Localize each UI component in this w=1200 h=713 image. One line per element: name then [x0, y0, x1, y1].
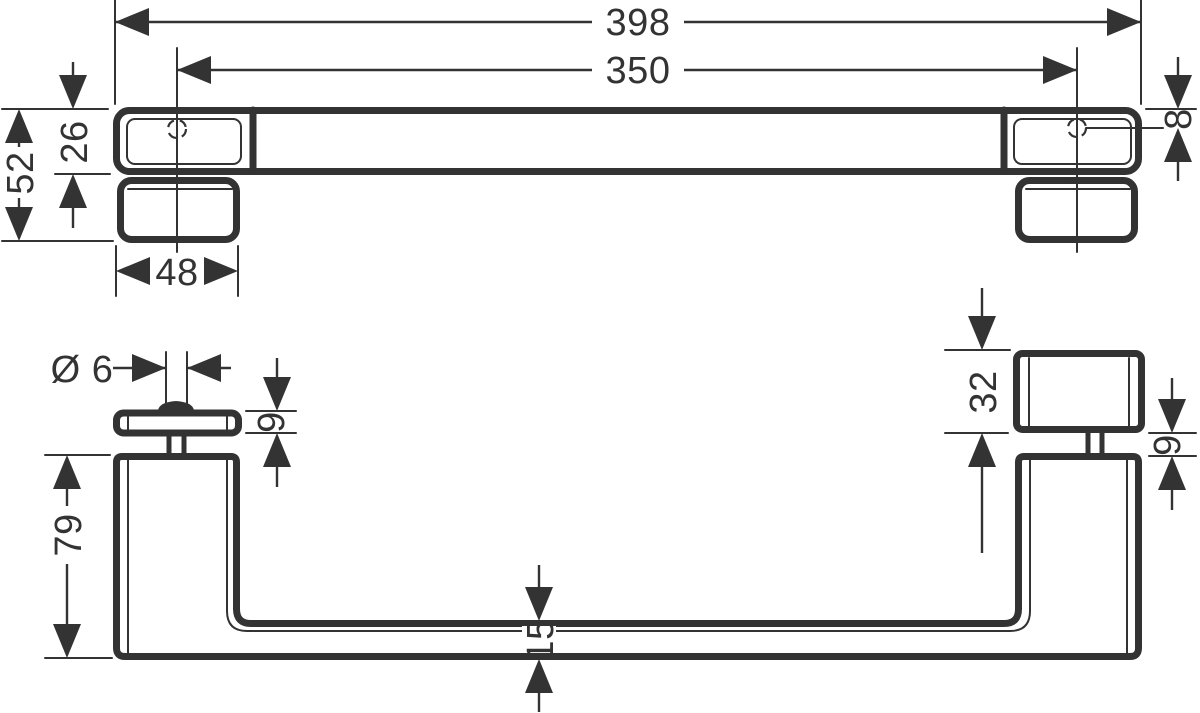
bar-outline: [117, 111, 1139, 172]
dim-hole-offset-label: 8: [1158, 108, 1200, 130]
dim-overall-length-label: 398: [606, 2, 671, 44]
dim-end-height-label: 52: [0, 151, 42, 194]
arrowhead: [59, 75, 87, 109]
technical-drawing: 398 350 52 26 48 8: [0, 0, 1200, 713]
drawing-canvas: 398 350 52 26 48 8: [0, 0, 1200, 713]
arrowhead: [59, 174, 87, 208]
arrowhead: [263, 433, 291, 467]
arrowhead: [132, 354, 166, 382]
dim-plate-width-label: 48: [155, 252, 198, 294]
arrowhead: [1164, 75, 1192, 109]
dim-gap-label: 9: [1147, 434, 1189, 456]
arrowhead: [1107, 8, 1141, 36]
arrowhead: [204, 257, 238, 285]
arrowhead: [115, 8, 149, 36]
dim-bar-height-label: 26: [54, 120, 96, 163]
right-block-inner-contour: [1014, 119, 1131, 164]
dim-cap-thickness-label: 9: [251, 411, 293, 433]
dim-pin-diameter-label: Ø 6: [51, 349, 114, 391]
arrowhead: [525, 587, 553, 621]
arrowhead: [187, 354, 221, 382]
dim-hole-spacing-label: 350: [606, 50, 671, 92]
bar-inner-contour: [227, 460, 1030, 631]
arrowhead: [1158, 456, 1186, 490]
top-view-dimensions: 398 350 52 26 48 8: [0, 0, 1200, 296]
dim-post-height-label: 79: [48, 513, 90, 556]
arrowhead: [968, 433, 996, 467]
arrowhead: [5, 207, 33, 241]
arrowhead: [53, 624, 81, 658]
dim-block-height-label: 32: [963, 370, 1005, 413]
arrowhead: [1043, 56, 1077, 84]
arrowhead: [5, 109, 33, 143]
arrowhead: [1158, 399, 1186, 433]
handle-outline: [117, 457, 1139, 657]
arrowhead: [1164, 128, 1192, 162]
left-cap: [117, 413, 239, 433]
arrowhead: [116, 257, 150, 285]
left-pin-dome: [158, 401, 194, 410]
dim-bar-thickness-label: 15: [520, 618, 562, 661]
right-block: [1017, 354, 1142, 430]
left-block-inner-contour: [127, 119, 241, 164]
arrowhead: [53, 455, 81, 489]
arrowhead: [177, 56, 211, 84]
arrowhead: [968, 316, 996, 350]
arrowhead: [525, 659, 553, 693]
arrowhead: [263, 377, 291, 411]
